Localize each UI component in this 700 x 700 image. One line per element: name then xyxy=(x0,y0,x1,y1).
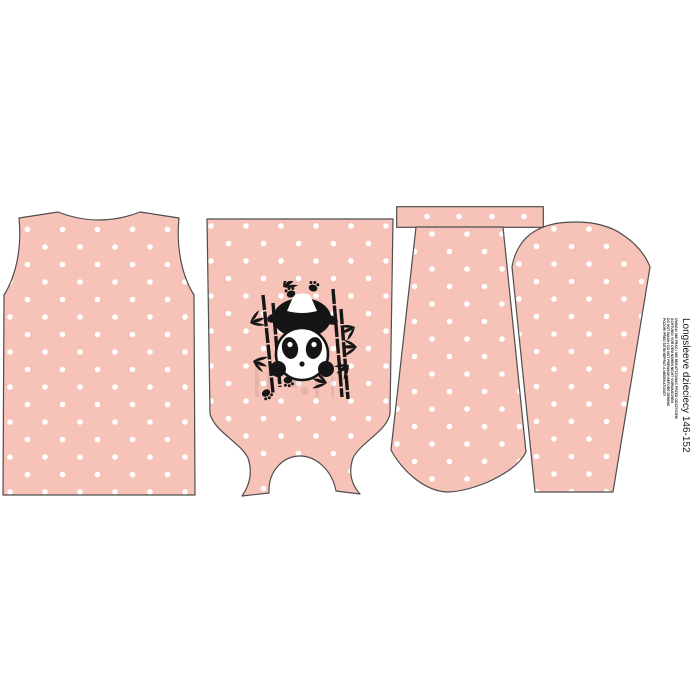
care-instructions: UWAGA! NIE PRAĆ / NIE DEKATYZOWAĆ PRZED … xyxy=(661,318,678,453)
panda-bamboo-motif xyxy=(247,281,359,403)
care-line-cz: POZOR! PŘED ŠITÍM NEPRAT A NEDEKATOVAT! xyxy=(661,318,665,453)
pattern-piece-sleeve-2 xyxy=(511,221,652,494)
side-label: Longsleeve dzieciecy 146-152 UWAGA! NIE … xyxy=(661,318,690,453)
care-line-pl: UWAGA! NIE PRAĆ / NIE DEKATYZOWAĆ PRZED … xyxy=(674,318,678,453)
care-line-en: DO NOT WASH / DO NOT PREWASH BEFORE SEWI… xyxy=(666,318,670,453)
pattern-piece-sleeve-1 xyxy=(389,226,529,496)
fabric-panel-sheet: Longsleeve dzieciecy 146-152 UWAGA! NIE … xyxy=(0,0,700,700)
panel-title: Longsleeve dzieciecy 146-152 xyxy=(680,318,690,453)
care-line-de: ACHTUNG! VOR DEM NÄHEN NICHT VORWASCHEN xyxy=(670,318,674,453)
pattern-piece-back xyxy=(2,204,196,497)
